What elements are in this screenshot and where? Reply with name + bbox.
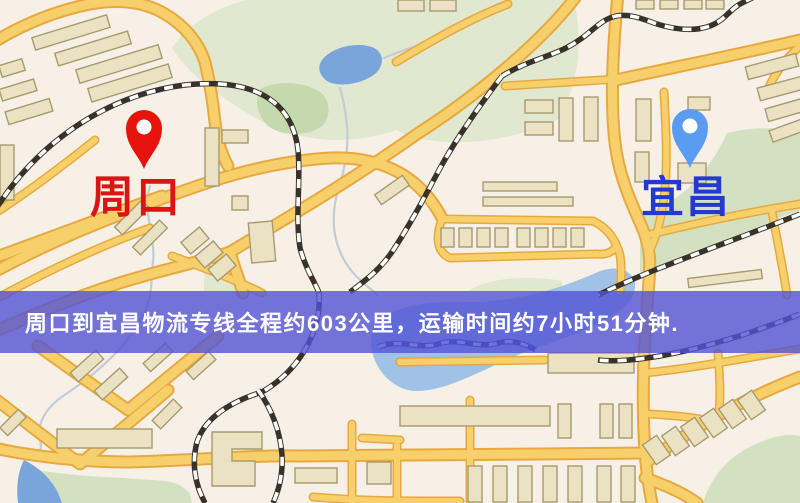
map-canvas — [0, 0, 800, 503]
origin-pin-icon — [124, 107, 164, 169]
origin-label: 周口 — [90, 176, 182, 220]
destination-pin-icon — [670, 106, 710, 168]
destination-label: 宜昌 — [641, 177, 731, 220]
route-info-text: 周口到宜昌物流专线全程约603公里，运输时间约7小时51分钟. — [0, 306, 679, 338]
route-map-image: 周口 宜昌 周口到宜昌物流专线全程约603公里，运输时间约7小时51分钟. — [0, 0, 800, 503]
route-info-banner: 周口到宜昌物流专线全程约603公里，运输时间约7小时51分钟. — [0, 291, 800, 353]
